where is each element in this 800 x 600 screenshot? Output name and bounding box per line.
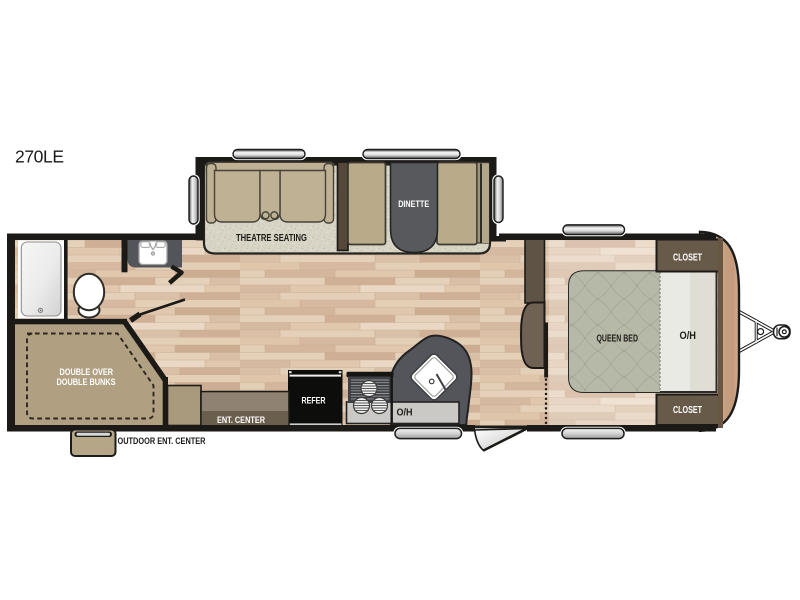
- svg-text:CLOSET: CLOSET: [673, 405, 702, 416]
- svg-text:OUTDOOR ENT. CENTER: OUTDOOR ENT. CENTER: [118, 436, 206, 446]
- svg-text:ENT. CENTER: ENT. CENTER: [217, 415, 265, 425]
- svg-text:O/H: O/H: [397, 408, 413, 419]
- svg-text:THEATRE SEATING: THEATRE SEATING: [236, 232, 307, 244]
- svg-text:O/H: O/H: [680, 330, 697, 342]
- svg-text:DOUBLE BUNKS: DOUBLE BUNKS: [57, 377, 116, 387]
- svg-text:DINETTE: DINETTE: [398, 199, 429, 210]
- svg-text:REFER: REFER: [302, 395, 326, 405]
- svg-text:270LE: 270LE: [15, 147, 64, 167]
- svg-text:DOUBLE OVER: DOUBLE OVER: [60, 367, 114, 377]
- svg-text:QUEEN BED: QUEEN BED: [597, 334, 639, 345]
- svg-text:CLOSET: CLOSET: [673, 252, 702, 263]
